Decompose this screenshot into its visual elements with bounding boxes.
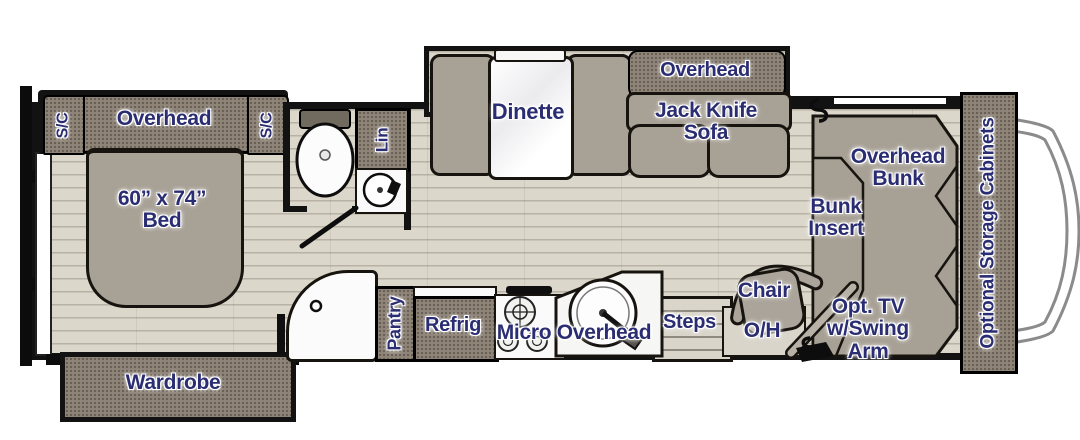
bed-label: 60” x 74” Bed bbox=[86, 188, 238, 236]
toilet bbox=[297, 110, 353, 196]
wardrobe-label: Wardrobe bbox=[60, 372, 286, 396]
overhead-bunk-label: Overhead Bunk bbox=[838, 146, 958, 192]
dinette-label: Dinette bbox=[458, 100, 598, 124]
rv-floorplan: S/C Overhead S/C 60” x 74” Bed Lin Wardr… bbox=[0, 0, 1080, 440]
bathroom-door-swing bbox=[302, 208, 356, 246]
bedroom-overhead-label: Overhead bbox=[83, 108, 245, 132]
tv-label: Opt. TV w/Swing Arm bbox=[812, 296, 924, 362]
sofa-overhead-label: Overhead bbox=[628, 60, 782, 84]
sofa-label: Jack Knife Sofa bbox=[626, 100, 786, 146]
chair-oh-label: O/H bbox=[722, 320, 802, 344]
bathroom-sink bbox=[364, 174, 401, 206]
steps-label: Steps bbox=[652, 312, 727, 334]
chair-label: Chair bbox=[724, 280, 804, 304]
micro-overhead-label: Micro Overhead bbox=[488, 322, 660, 344]
refrig-label: Refrig bbox=[413, 315, 493, 337]
bunk-insert-label: Bunk Insert bbox=[800, 196, 872, 242]
shower-drain bbox=[311, 301, 321, 311]
